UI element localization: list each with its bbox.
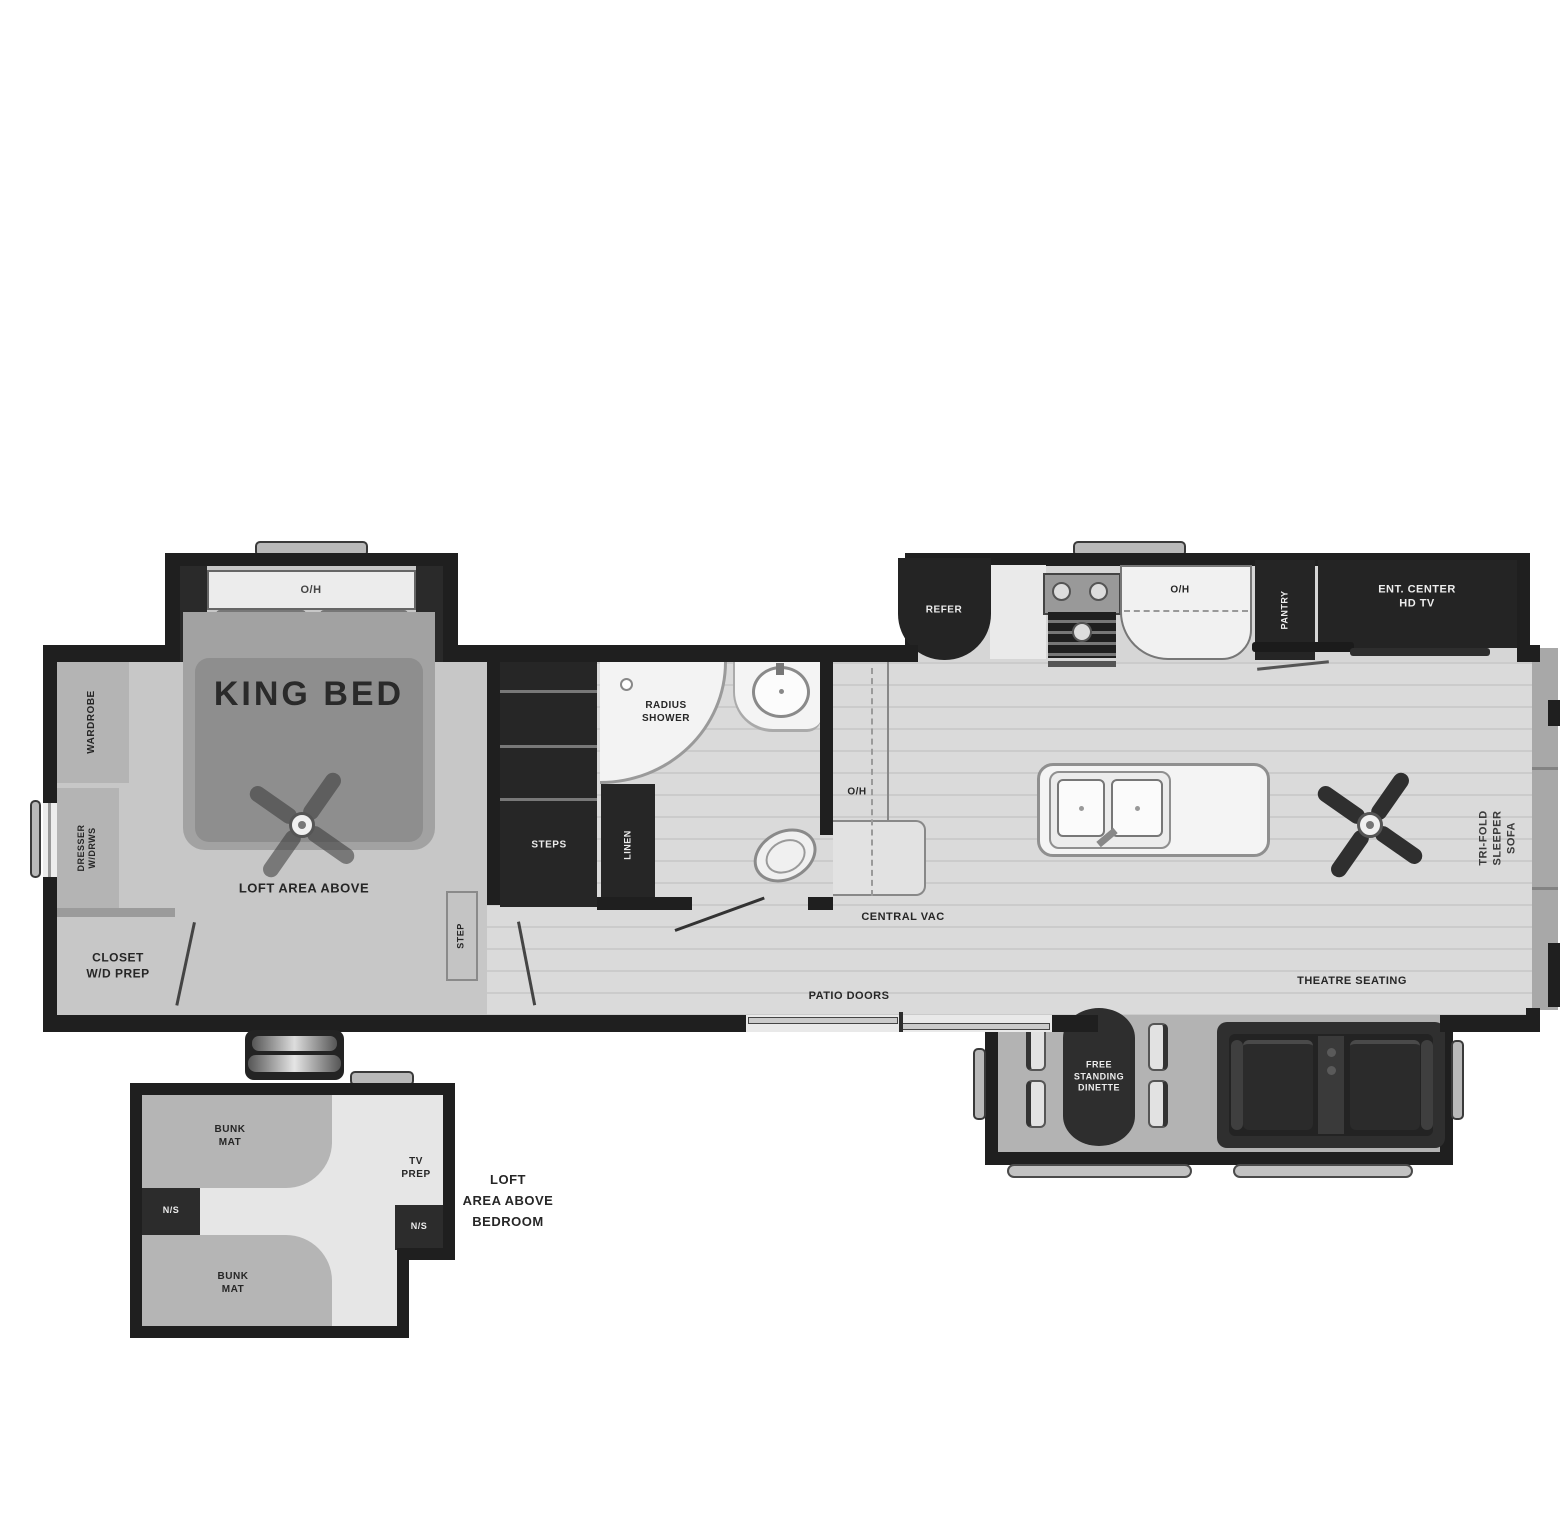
wall [130, 1326, 409, 1338]
theatre-armrest [1421, 1040, 1433, 1130]
overhead-cabinet-dashed-line [871, 668, 873, 896]
dresser-shelf [57, 908, 175, 917]
wall [1052, 1015, 1098, 1032]
wall [397, 1260, 409, 1338]
kitchen-overhead-cabinet [1120, 565, 1252, 660]
wall [597, 897, 692, 910]
window-pane-line [48, 803, 51, 877]
nightstand-label: N/S [163, 1205, 180, 1217]
burner-icon [1089, 582, 1108, 601]
sink-basin-icon [1111, 779, 1163, 837]
dinette-chair [1026, 1080, 1046, 1128]
loft-caption: LOFT AREA ABOVE BEDROOM [463, 1170, 554, 1232]
sink-basin-icon [1057, 779, 1105, 837]
wall [165, 553, 458, 566]
left-window-frame [30, 800, 41, 878]
wall [443, 553, 458, 662]
sofa-cushion-divider [1532, 887, 1558, 890]
wall-stub [1548, 700, 1560, 726]
slideout-latch-right [1451, 1040, 1464, 1120]
stair-tread-line [500, 798, 597, 801]
wall [1440, 1015, 1540, 1032]
wardrobe-label: WARDROBE [86, 690, 99, 753]
wall [130, 1083, 142, 1338]
kitchen-counter [990, 565, 1046, 659]
king-bed-label: KING BED [214, 672, 404, 716]
stair-tread-line [500, 690, 597, 693]
step-label: STEP [455, 923, 466, 949]
entry-step-tread [252, 1036, 337, 1051]
dinette-chair [1148, 1023, 1168, 1071]
stair-tread-line [500, 745, 597, 748]
hall-counter [833, 820, 926, 896]
tv-icon [1252, 642, 1354, 652]
tv-prep-label: TV PREP [401, 1155, 430, 1181]
stove-knobs [1048, 661, 1116, 667]
counter-overhead-label: O/H [847, 786, 866, 799]
wall [443, 1083, 455, 1260]
cupholder-icon [1327, 1066, 1336, 1075]
wall [1517, 645, 1540, 662]
entertainment-center-label: ENT. CENTER HD TV [1378, 583, 1456, 612]
burner-icon [1052, 582, 1071, 601]
patio-door-panel [748, 1017, 898, 1024]
wall [165, 553, 180, 662]
wall [43, 1015, 746, 1032]
shower-label: RADIUS SHOWER [642, 699, 690, 725]
linen-label: LINEN [622, 830, 633, 860]
nightstand-label: N/S [411, 1221, 428, 1233]
slideout-rail [1007, 1164, 1192, 1178]
burner-icon [1072, 622, 1092, 642]
wall [458, 645, 918, 662]
tv-stand [1350, 648, 1490, 656]
wall [43, 645, 57, 803]
central-vac-label: CENTRAL VAC [861, 910, 944, 924]
dinette-chair [1148, 1080, 1168, 1128]
faucet-icon [776, 663, 784, 675]
theatre-seat [1243, 1040, 1313, 1130]
wall [1526, 1008, 1540, 1032]
refrigerator-label: REFER [926, 604, 962, 617]
slideout-latch-left [973, 1048, 986, 1120]
cupholder-icon [1327, 1048, 1336, 1057]
dresser-label: DRESSER W/DRWS [76, 824, 99, 871]
sofa-cushion-divider [1532, 767, 1558, 770]
closet-label: CLOSET W/D PREP [86, 950, 149, 981]
slideout-rail [1233, 1164, 1413, 1178]
bunk-mat-label: BUNK MAT [215, 1123, 246, 1149]
wall [130, 1083, 455, 1095]
theatre-seating-label: THEATRE SEATING [1297, 974, 1407, 988]
wall-stub [1548, 943, 1560, 1007]
steps-label: STEPS [531, 839, 566, 852]
patio-doors-label: PATIO DOORS [809, 989, 890, 1003]
kitchen-overhead-label: O/H [1170, 584, 1189, 597]
stairs [500, 662, 597, 907]
pantry-label: PANTRY [1279, 591, 1290, 630]
theatre-seat [1350, 1040, 1420, 1130]
wall [397, 1248, 455, 1260]
patio-door-jamb [899, 1012, 903, 1032]
wall [820, 662, 833, 835]
bed-overhead-label: O/H [300, 583, 321, 597]
wall [808, 897, 833, 910]
shower-drain-icon [620, 678, 633, 691]
wall [43, 645, 165, 662]
wall [43, 877, 57, 1032]
bunk-mat-label: BUNK MAT [218, 1270, 249, 1296]
rv-floorplan: O/H KING BED LOFT AREA ABOVE WARDROBE DR… [0, 0, 1562, 1537]
sofa-label: TRI-FOLD SLEEPER SOFA [1477, 806, 1518, 870]
theatre-armrest [1231, 1040, 1243, 1130]
patio-door-panel [902, 1023, 1050, 1030]
overhead-cabinet-dashed-line [1124, 610, 1248, 612]
dinette-label: FREE STANDING DINETTE [1074, 1059, 1124, 1094]
wall [487, 662, 500, 905]
loft-area-above-label: LOFT AREA ABOVE [239, 881, 369, 898]
entry-step-tread [248, 1055, 341, 1072]
